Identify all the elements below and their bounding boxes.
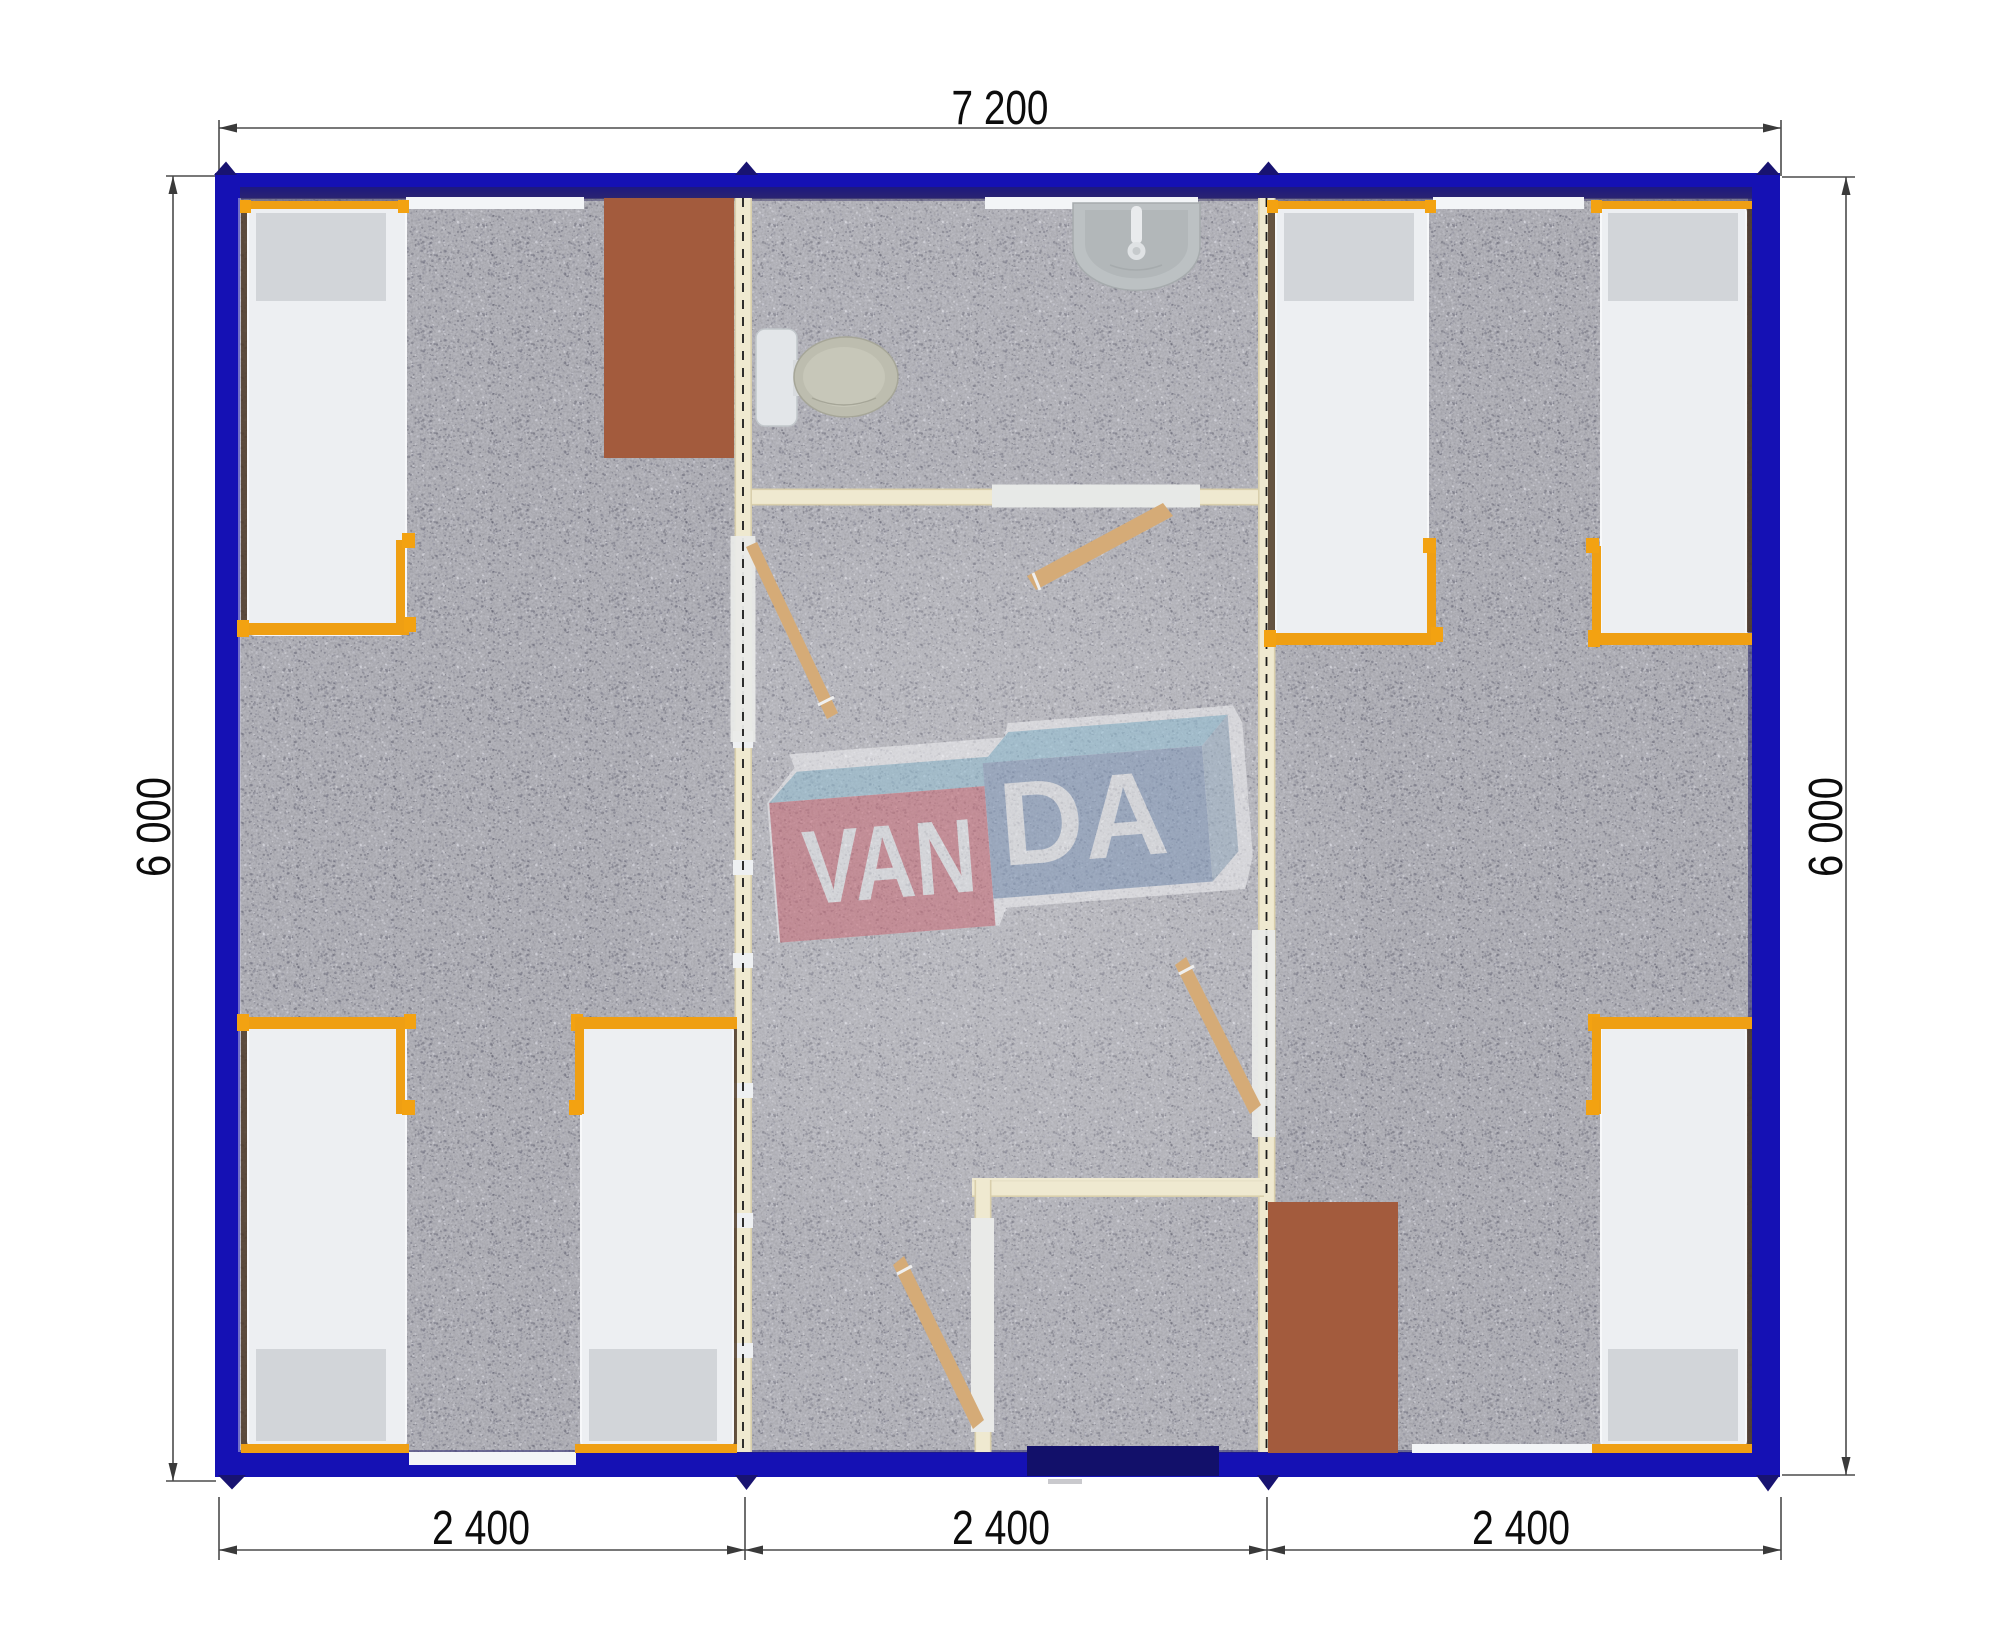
svg-text:6 000: 6 000 xyxy=(1800,777,1853,877)
svg-text:2 400: 2 400 xyxy=(952,1502,1050,1555)
svg-text:7 200: 7 200 xyxy=(952,82,1049,135)
svg-text:6 000: 6 000 xyxy=(128,777,181,877)
svg-text:2 400: 2 400 xyxy=(1472,1502,1570,1555)
svg-text:VAN: VAN xyxy=(799,797,981,927)
svg-text:2 400: 2 400 xyxy=(432,1502,530,1555)
svg-text:DA: DA xyxy=(994,746,1172,892)
